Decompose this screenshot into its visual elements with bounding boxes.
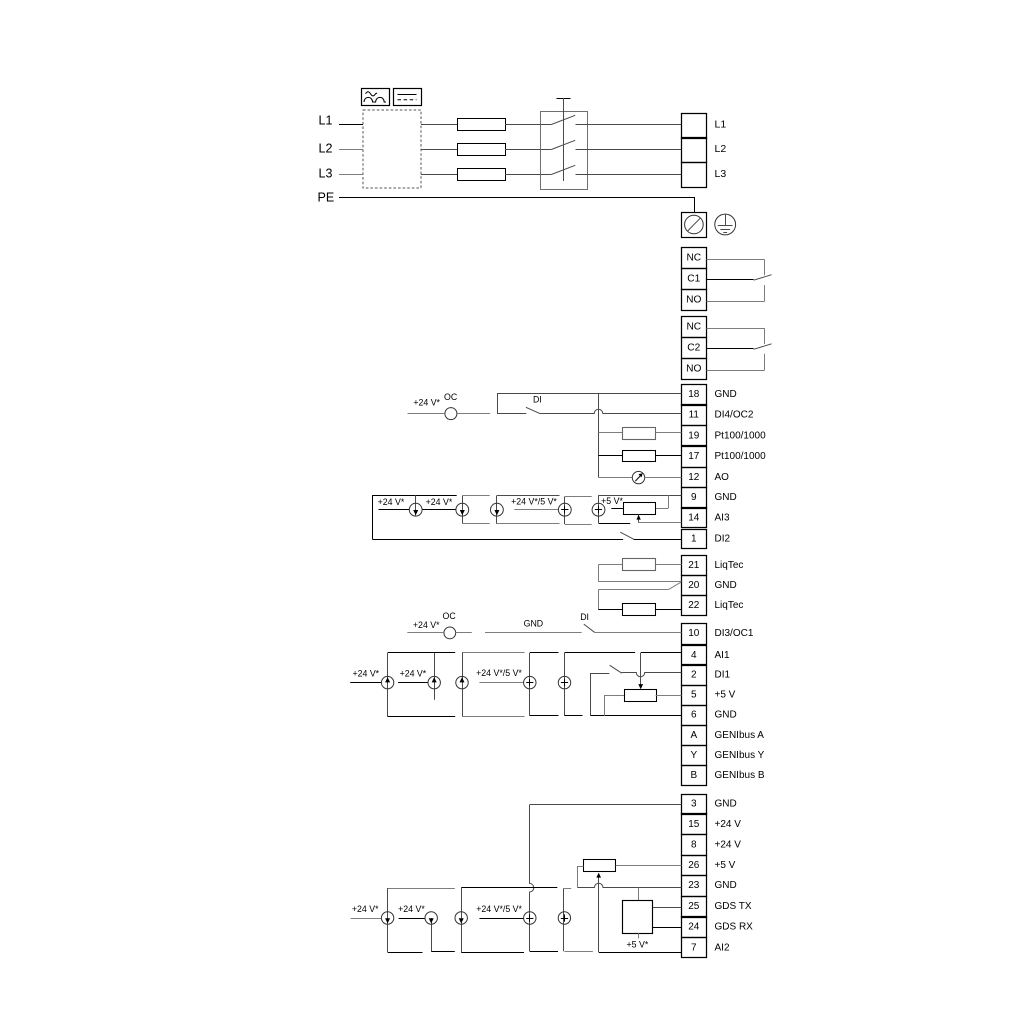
svg-text:25: 25 <box>688 901 700 912</box>
svg-text:7: 7 <box>691 942 697 953</box>
svg-text:L2: L2 <box>319 142 333 156</box>
svg-text:GND: GND <box>715 492 737 503</box>
svg-text:+24 V*: +24 V* <box>352 904 379 914</box>
svg-text:GND: GND <box>715 798 737 809</box>
svg-text:GND: GND <box>524 619 544 629</box>
svg-text:OC: OC <box>443 611 457 621</box>
svg-text:AI3: AI3 <box>715 513 730 524</box>
svg-text:2: 2 <box>691 670 697 681</box>
svg-text:GENIbus A: GENIbus A <box>715 730 765 741</box>
svg-text:Y: Y <box>690 750 697 761</box>
svg-text:DI: DI <box>533 395 542 405</box>
svg-text:+24 V*: +24 V* <box>413 398 440 408</box>
svg-text:L1: L1 <box>715 118 727 130</box>
svg-text:23: 23 <box>688 880 700 891</box>
svg-text:C1: C1 <box>687 273 700 284</box>
svg-text:+24 V*: +24 V* <box>426 497 453 507</box>
svg-text:+5 V: +5 V <box>715 860 736 871</box>
svg-text:+24 V*: +24 V* <box>352 668 379 678</box>
svg-text:+5 V*: +5 V* <box>627 939 649 949</box>
svg-text:C2: C2 <box>687 343 700 354</box>
svg-text:GND: GND <box>715 389 737 400</box>
svg-text:+5 V*: +5 V* <box>601 496 623 506</box>
svg-text:L3: L3 <box>319 167 333 181</box>
svg-text:3: 3 <box>691 798 697 809</box>
svg-text:+24 V: +24 V <box>715 819 742 830</box>
svg-text:NC: NC <box>686 252 701 263</box>
svg-text:20: 20 <box>688 580 700 591</box>
svg-text:L2: L2 <box>715 143 727 155</box>
svg-text:GND: GND <box>715 710 737 721</box>
svg-text:GDS RX: GDS RX <box>715 922 754 933</box>
svg-text:+24 V*: +24 V* <box>378 497 405 507</box>
svg-text:A: A <box>690 730 697 741</box>
svg-text:L3: L3 <box>715 168 727 180</box>
svg-text:AI1: AI1 <box>715 650 730 661</box>
svg-text:8: 8 <box>691 840 697 851</box>
svg-text:LiqTec: LiqTec <box>715 600 744 611</box>
svg-text:15: 15 <box>688 819 700 830</box>
svg-text:17: 17 <box>688 451 700 462</box>
svg-text:AO: AO <box>715 472 730 483</box>
svg-text:GENIbus B: GENIbus B <box>715 770 765 781</box>
svg-text:24: 24 <box>688 922 700 933</box>
svg-text:+24 V*/5 V*: +24 V*/5 V* <box>476 904 522 914</box>
svg-text:DI2: DI2 <box>715 534 731 545</box>
svg-text:5: 5 <box>691 690 697 701</box>
svg-text:Pt100/1000: Pt100/1000 <box>715 451 767 462</box>
svg-text:10: 10 <box>688 628 700 639</box>
svg-text:+24 V*: +24 V* <box>398 904 425 914</box>
svg-text:L1: L1 <box>319 113 333 127</box>
svg-text:19: 19 <box>688 431 700 442</box>
svg-text:+24 V*: +24 V* <box>413 620 440 630</box>
svg-text:9: 9 <box>691 492 697 503</box>
svg-text:+24 V*/5 V*: +24 V*/5 V* <box>511 497 557 507</box>
svg-text:LiqTec: LiqTec <box>715 560 744 571</box>
svg-text:6: 6 <box>691 710 697 721</box>
svg-text:22: 22 <box>688 600 700 611</box>
svg-text:GND: GND <box>715 580 737 591</box>
svg-text:NC: NC <box>686 322 701 333</box>
svg-text:PE: PE <box>318 191 335 205</box>
svg-text:NO: NO <box>686 294 701 305</box>
svg-text:NO: NO <box>686 364 701 375</box>
svg-text:11: 11 <box>689 409 700 420</box>
svg-text:B: B <box>690 770 697 781</box>
svg-text:1: 1 <box>691 534 697 545</box>
svg-text:DI1: DI1 <box>715 670 731 681</box>
svg-text:18: 18 <box>688 389 700 400</box>
svg-text:+24 V: +24 V <box>715 840 742 851</box>
svg-text:14: 14 <box>688 513 700 524</box>
svg-text:12: 12 <box>688 472 700 483</box>
svg-text:+24 V*: +24 V* <box>400 668 427 678</box>
svg-text:GND: GND <box>715 880 737 891</box>
svg-text:DI: DI <box>580 612 589 622</box>
svg-text:DI3/OC1: DI3/OC1 <box>715 628 754 639</box>
svg-text:+24 V*/5 V*: +24 V*/5 V* <box>476 668 522 678</box>
svg-text:21: 21 <box>688 560 700 571</box>
svg-text:+5 V: +5 V <box>715 690 736 701</box>
svg-text:26: 26 <box>688 860 700 871</box>
svg-text:Pt100/1000: Pt100/1000 <box>715 431 767 442</box>
svg-text:OC: OC <box>444 392 458 402</box>
svg-text:AI2: AI2 <box>715 942 730 953</box>
svg-text:GDS TX: GDS TX <box>715 901 752 912</box>
svg-text:GENIbus Y: GENIbus Y <box>715 750 765 761</box>
svg-text:4: 4 <box>691 650 697 661</box>
svg-text:DI4/OC2: DI4/OC2 <box>715 409 754 420</box>
